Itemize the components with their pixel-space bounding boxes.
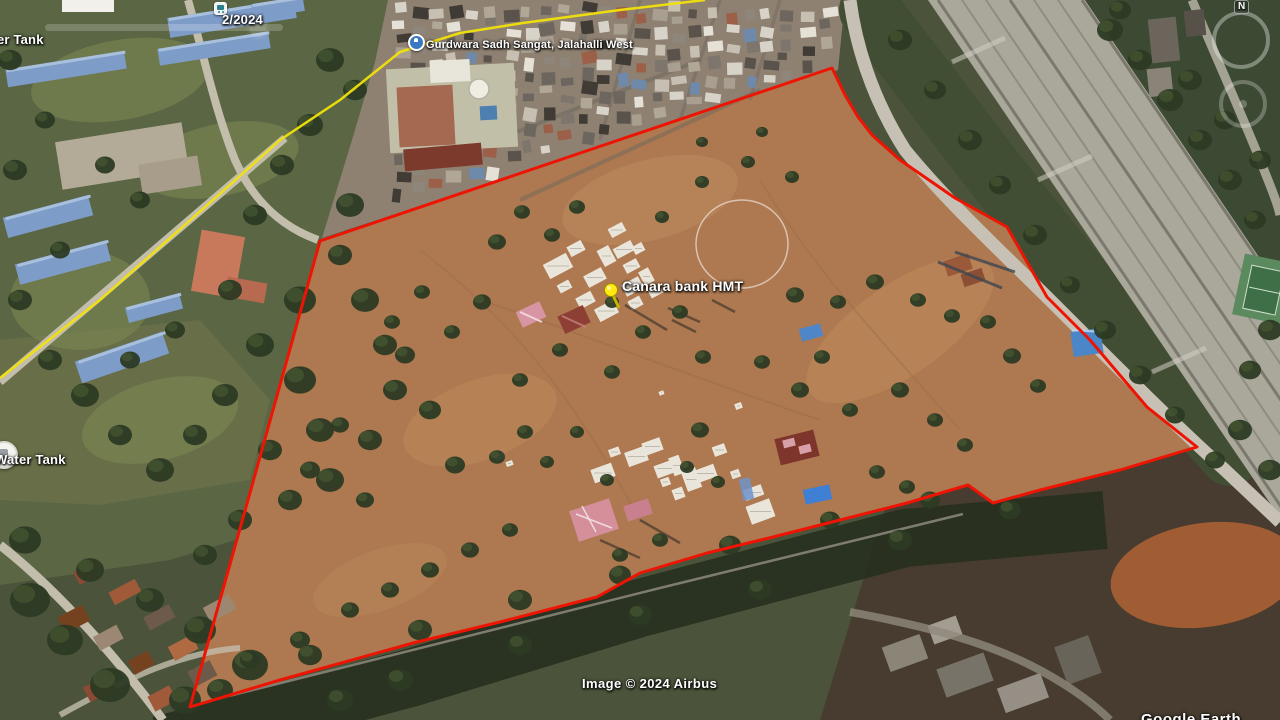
- place-label-water-tank-mid: Water Tank: [0, 452, 66, 467]
- satellite-map-canvas[interactable]: Water Tank 2/2024 Gurdwara Sadh Sangat, …: [0, 0, 1280, 720]
- google-earth-watermark: Google Earth: [1141, 711, 1241, 720]
- satellite-imagery: [0, 0, 1280, 720]
- imagery-date-label: 2/2024: [222, 12, 263, 27]
- imagery-attribution: Image © 2024 Airbus: [582, 676, 717, 691]
- place-label-water-tank-top: Water Tank: [0, 32, 44, 47]
- place-label-canara-bank: Canara bank HMT: [622, 278, 743, 294]
- place-label-gurdwara: Gurdwara Sadh Sangat, Jalahalli West: [426, 39, 633, 51]
- compass-north-label[interactable]: N: [1234, 0, 1249, 14]
- gurdwara-place-icon[interactable]: [408, 34, 425, 51]
